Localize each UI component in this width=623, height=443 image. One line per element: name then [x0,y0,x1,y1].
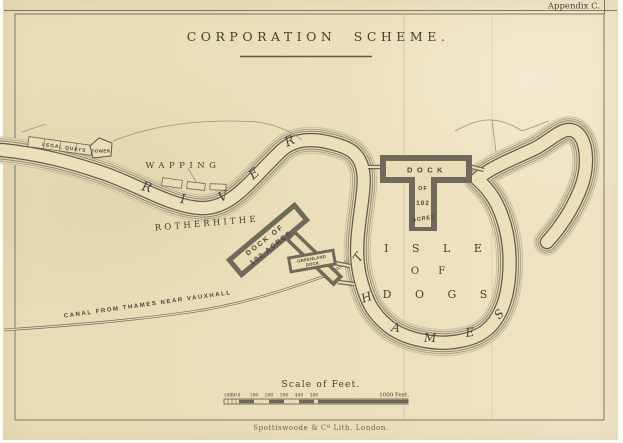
svg-text:O F: O F [411,266,453,277]
rotherhithe-dock: DOCK OF 102 ACRES [226,202,354,287]
svg-text:D O G S: D O G S [383,288,498,301]
svg-text:102: 102 [416,200,430,207]
printer-imprint: Spottiswoode & Cº Lith. London. [253,424,389,432]
isle-of-dogs-label: I S L E O F D O G S [383,242,498,301]
appendix-label: Appendix C. [547,2,600,12]
svg-text:200: 200 [265,394,274,399]
svg-text:50: 50 [231,394,237,399]
scale-end-label: 1000 Feet. [379,393,409,399]
svg-text:M: M [423,331,437,345]
svg-text:300: 300 [280,394,289,399]
svg-text:I S L E: I S L E [384,242,492,255]
svg-text:500: 500 [310,394,319,399]
canal-label: CANAL FROM THAMES NEAR VAUXHALL [64,290,233,320]
tower-label: TOWER [91,149,110,154]
isle-of-dogs-dock: DOCK OF 102 ACRES [368,155,484,231]
wapping-label: WAPPING [146,161,221,171]
svg-text:400: 400 [295,394,304,399]
svg-text:DOCK: DOCK [407,166,447,175]
svg-text:100: 100 [250,394,259,399]
scale-bar: Scale of Feet. 100 50 0 100 200 300 400 … [224,380,409,404]
scanned-map-page: Appendix C. CORPORATION SCHEME. CANAL FR… [0,0,623,443]
map-canvas: Appendix C. CORPORATION SCHEME. CANAL FR… [0,0,623,443]
svg-text:OF: OF [418,186,428,192]
map-title: CORPORATION SCHEME. [187,29,450,44]
svg-text:0: 0 [238,394,241,399]
scale-title: Scale of Feet. [282,380,361,390]
